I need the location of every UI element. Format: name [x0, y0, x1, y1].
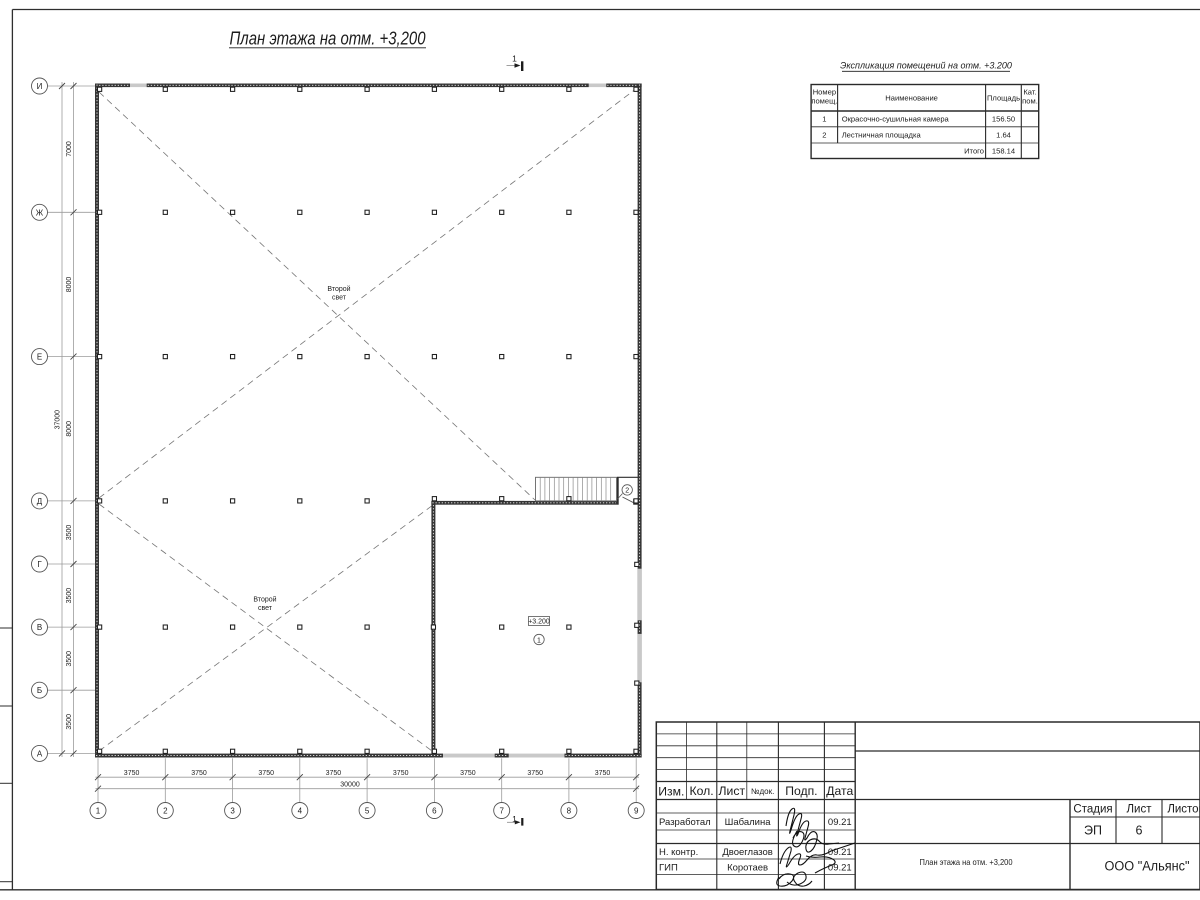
- svg-text:В: В: [37, 623, 42, 632]
- svg-text:План этажа на отм. +3,200: План этажа на отм. +3,200: [920, 857, 1013, 867]
- svg-text:7000: 7000: [66, 141, 73, 157]
- svg-text:Двоеглазов: Двоеглазов: [722, 847, 773, 858]
- svg-text:1: 1: [822, 115, 826, 124]
- svg-text:Экспликация помещений на отм.: Экспликация помещений на отм. +3.200: [840, 61, 1012, 71]
- svg-text:5: 5: [365, 807, 370, 816]
- svg-text:3750: 3750: [595, 770, 611, 777]
- svg-text:156.50: 156.50: [992, 115, 1015, 124]
- svg-text:Второй: Второй: [327, 285, 350, 293]
- svg-text:3: 3: [230, 807, 235, 816]
- svg-text:7: 7: [499, 807, 504, 816]
- svg-text:ЭП: ЭП: [1084, 824, 1102, 838]
- svg-text:1.64: 1.64: [996, 131, 1011, 140]
- svg-text:2: 2: [163, 807, 168, 816]
- svg-text:свет: свет: [332, 295, 347, 302]
- svg-text:3750: 3750: [326, 770, 342, 777]
- svg-text:3750: 3750: [258, 770, 274, 777]
- svg-text:помещ.: помещ.: [811, 97, 837, 106]
- svg-text:Листов: Листов: [1167, 804, 1200, 816]
- svg-text:09.21: 09.21: [828, 817, 852, 828]
- svg-text:2: 2: [625, 488, 629, 495]
- svg-text:Наименование: Наименование: [885, 94, 938, 103]
- svg-text:8000: 8000: [66, 421, 73, 437]
- svg-text:пом.: пом.: [1022, 97, 1038, 106]
- svg-text:Номер: Номер: [813, 88, 836, 97]
- svg-text:Дата: Дата: [826, 784, 853, 798]
- svg-text:37000: 37000: [55, 410, 62, 430]
- svg-text:Шабалина: Шабалина: [725, 817, 772, 828]
- svg-text:3500: 3500: [66, 588, 73, 604]
- svg-text:9: 9: [634, 807, 639, 816]
- svg-text:8: 8: [567, 807, 572, 816]
- svg-text:3500: 3500: [66, 525, 73, 541]
- svg-text:1: 1: [512, 54, 517, 64]
- svg-text:8000: 8000: [66, 277, 73, 293]
- svg-text:Итого: Итого: [964, 147, 984, 156]
- svg-text:1: 1: [537, 637, 541, 644]
- svg-text:Коротаев: Коротаев: [727, 863, 768, 874]
- svg-text:3750: 3750: [460, 770, 476, 777]
- svg-text:09.21: 09.21: [828, 863, 852, 874]
- svg-text:Подп.: Подп.: [785, 784, 817, 798]
- svg-text:3750: 3750: [527, 770, 543, 777]
- svg-text:30000: 30000: [340, 781, 360, 788]
- svg-text:2: 2: [822, 131, 826, 140]
- svg-text:Е: Е: [37, 353, 42, 362]
- svg-text:Изм.: Изм.: [658, 785, 684, 799]
- svg-text:6: 6: [1136, 824, 1143, 838]
- svg-text:Кат.: Кат.: [1023, 88, 1036, 97]
- svg-text:3500: 3500: [66, 651, 73, 667]
- svg-text:План этажа на отм. +3,200: План этажа на отм. +3,200: [230, 29, 426, 49]
- svg-text:Второй: Второй: [253, 596, 276, 604]
- svg-text:свет: свет: [258, 605, 273, 612]
- svg-text:Площадь: Площадь: [987, 94, 1020, 103]
- svg-text:Кол.: Кол.: [690, 784, 714, 798]
- svg-text:3750: 3750: [393, 770, 409, 777]
- svg-text:158.14: 158.14: [992, 147, 1015, 156]
- svg-text:Лист: Лист: [1127, 804, 1153, 816]
- svg-text:+3.200: +3.200: [528, 619, 550, 626]
- svg-text:4: 4: [298, 807, 303, 816]
- svg-text:3750: 3750: [191, 770, 207, 777]
- svg-text:Д: Д: [37, 497, 43, 506]
- svg-text:3750: 3750: [124, 770, 140, 777]
- svg-text:Г: Г: [37, 560, 42, 569]
- svg-text:ООО "Альянс": ООО "Альянс": [1105, 859, 1190, 874]
- svg-text:Лестничная площадка: Лестничная площадка: [842, 131, 922, 140]
- svg-text:Стадия: Стадия: [1073, 804, 1112, 816]
- svg-text:3500: 3500: [66, 714, 73, 730]
- svg-text:Б: Б: [37, 686, 42, 695]
- svg-text:09.21: 09.21: [828, 847, 852, 858]
- svg-text:Окрасочно-сушильная камера: Окрасочно-сушильная камера: [842, 115, 950, 124]
- svg-text:1: 1: [96, 807, 101, 816]
- svg-text:Н. контр.: Н. контр.: [659, 847, 698, 858]
- svg-text:ГИП: ГИП: [659, 863, 678, 874]
- svg-text:Лист: Лист: [719, 784, 746, 798]
- svg-text:6: 6: [432, 807, 437, 816]
- svg-text:Ж: Ж: [36, 208, 44, 217]
- svg-text:А: А: [37, 749, 43, 758]
- svg-text:Разработал: Разработал: [659, 817, 711, 828]
- svg-text:№док.: №док.: [751, 787, 774, 796]
- svg-text:И: И: [37, 82, 43, 91]
